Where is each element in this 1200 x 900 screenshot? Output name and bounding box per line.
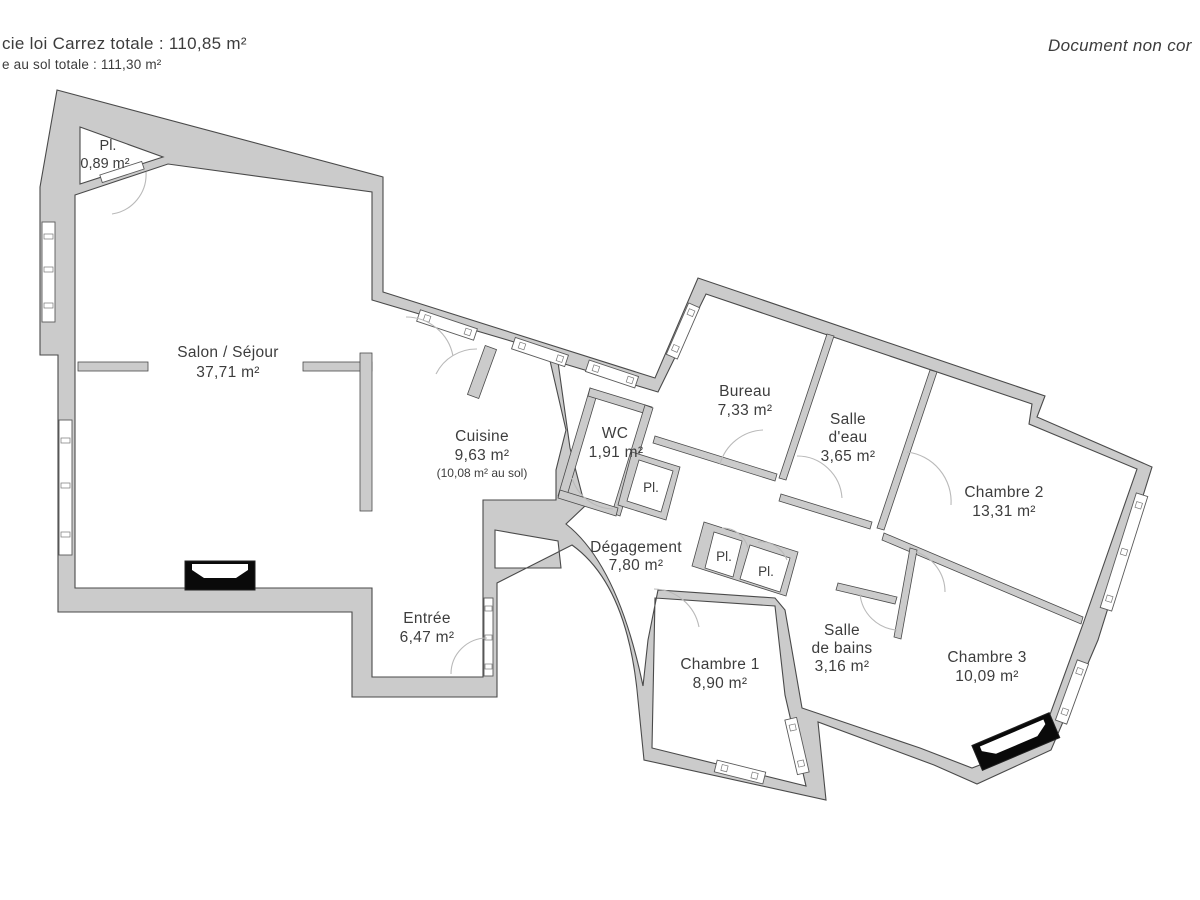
- floorplan-svg: Pl. 0,89 m² Salon / Séjour 37,71 m² Cuis…: [0, 0, 1200, 900]
- svg-text:Salon / Séjour: Salon / Séjour: [177, 344, 279, 361]
- room-label-chambre-1: Chambre 1 8,90 m²: [680, 656, 759, 692]
- svg-text:13,31 m²: 13,31 m²: [972, 503, 1036, 520]
- svg-text:d'eau: d'eau: [829, 429, 868, 446]
- svg-text:8,90 m²: 8,90 m²: [693, 675, 748, 692]
- room-label-placard-2: Pl.: [758, 564, 774, 579]
- entrance-door-icon: [451, 598, 493, 676]
- svg-text:Pl.: Pl.: [758, 564, 774, 579]
- door-arc: [907, 452, 951, 505]
- window-icon: [42, 222, 55, 322]
- room-label-degagement: Dégagement 7,80 m²: [590, 539, 682, 574]
- fireplace-icon: [185, 561, 255, 590]
- svg-text:(10,08 m² au sol): (10,08 m² au sol): [437, 466, 528, 480]
- window-icon: [666, 303, 699, 359]
- room-label-salle-deau: Salle d'eau 3,65 m²: [821, 411, 876, 465]
- svg-text:Bureau: Bureau: [719, 383, 771, 400]
- svg-text:WC: WC: [602, 425, 628, 442]
- svg-text:6,47 m²: 6,47 m²: [400, 629, 455, 646]
- total-carrez-area-text: cie loi Carrez totale : 110,85 m²: [2, 34, 247, 54]
- room-label-chambre-3: Chambre 3 10,09 m²: [947, 649, 1026, 685]
- svg-text:Pl.: Pl.: [100, 138, 117, 154]
- room-label-placard-wc: Pl.: [643, 480, 659, 495]
- floorplan-page: cie loi Carrez totale : 110,85 m² e au s…: [0, 0, 1200, 900]
- room-label-placard-1: Pl.: [716, 549, 732, 564]
- svg-text:7,80 m²: 7,80 m²: [609, 557, 664, 574]
- room-label-bureau: Bureau 7,33 m²: [718, 383, 773, 419]
- room-label-cuisine: Cuisine 9,63 m² (10,08 m² au sol): [437, 428, 528, 480]
- svg-text:7,33 m²: 7,33 m²: [718, 402, 773, 419]
- svg-text:0,89 m²: 0,89 m²: [80, 156, 129, 172]
- room-label-chambre-2: Chambre 2 13,31 m²: [964, 484, 1043, 520]
- svg-text:Cuisine: Cuisine: [455, 428, 509, 445]
- svg-text:Pl.: Pl.: [716, 549, 732, 564]
- door-arc: [436, 349, 477, 374]
- window-icon: [59, 420, 72, 555]
- svg-text:3,16 m²: 3,16 m²: [815, 658, 870, 675]
- room-label-salle-de-bains: Salle de bains 3,16 m²: [811, 622, 872, 675]
- svg-text:Salle: Salle: [824, 622, 860, 639]
- svg-text:10,09 m²: 10,09 m²: [955, 668, 1019, 685]
- svg-text:3,65 m²: 3,65 m²: [821, 448, 876, 465]
- svg-text:Entrée: Entrée: [403, 610, 450, 627]
- svg-text:Dégagement: Dégagement: [590, 539, 682, 556]
- svg-text:9,63 m²: 9,63 m²: [455, 447, 510, 464]
- room-label-salon: Salon / Séjour 37,71 m²: [177, 344, 279, 381]
- svg-text:Chambre 3: Chambre 3: [947, 649, 1026, 666]
- svg-text:Chambre 2: Chambre 2: [964, 484, 1043, 501]
- svg-text:de bains: de bains: [811, 640, 872, 657]
- non-contractual-note: Document non cor: [1048, 36, 1192, 56]
- svg-text:Salle: Salle: [830, 411, 866, 428]
- svg-text:1,91 m²: 1,91 m²: [589, 444, 644, 461]
- svg-text:Chambre 1: Chambre 1: [680, 656, 759, 673]
- svg-text:Pl.: Pl.: [643, 480, 659, 495]
- total-floor-area-text: e au sol totale : 111,30 m²: [2, 57, 162, 72]
- svg-text:37,71 m²: 37,71 m²: [196, 364, 260, 381]
- room-label-entree: Entrée 6,47 m²: [400, 610, 455, 646]
- room-label-pl-triangle: Pl. 0,89 m²: [80, 138, 129, 172]
